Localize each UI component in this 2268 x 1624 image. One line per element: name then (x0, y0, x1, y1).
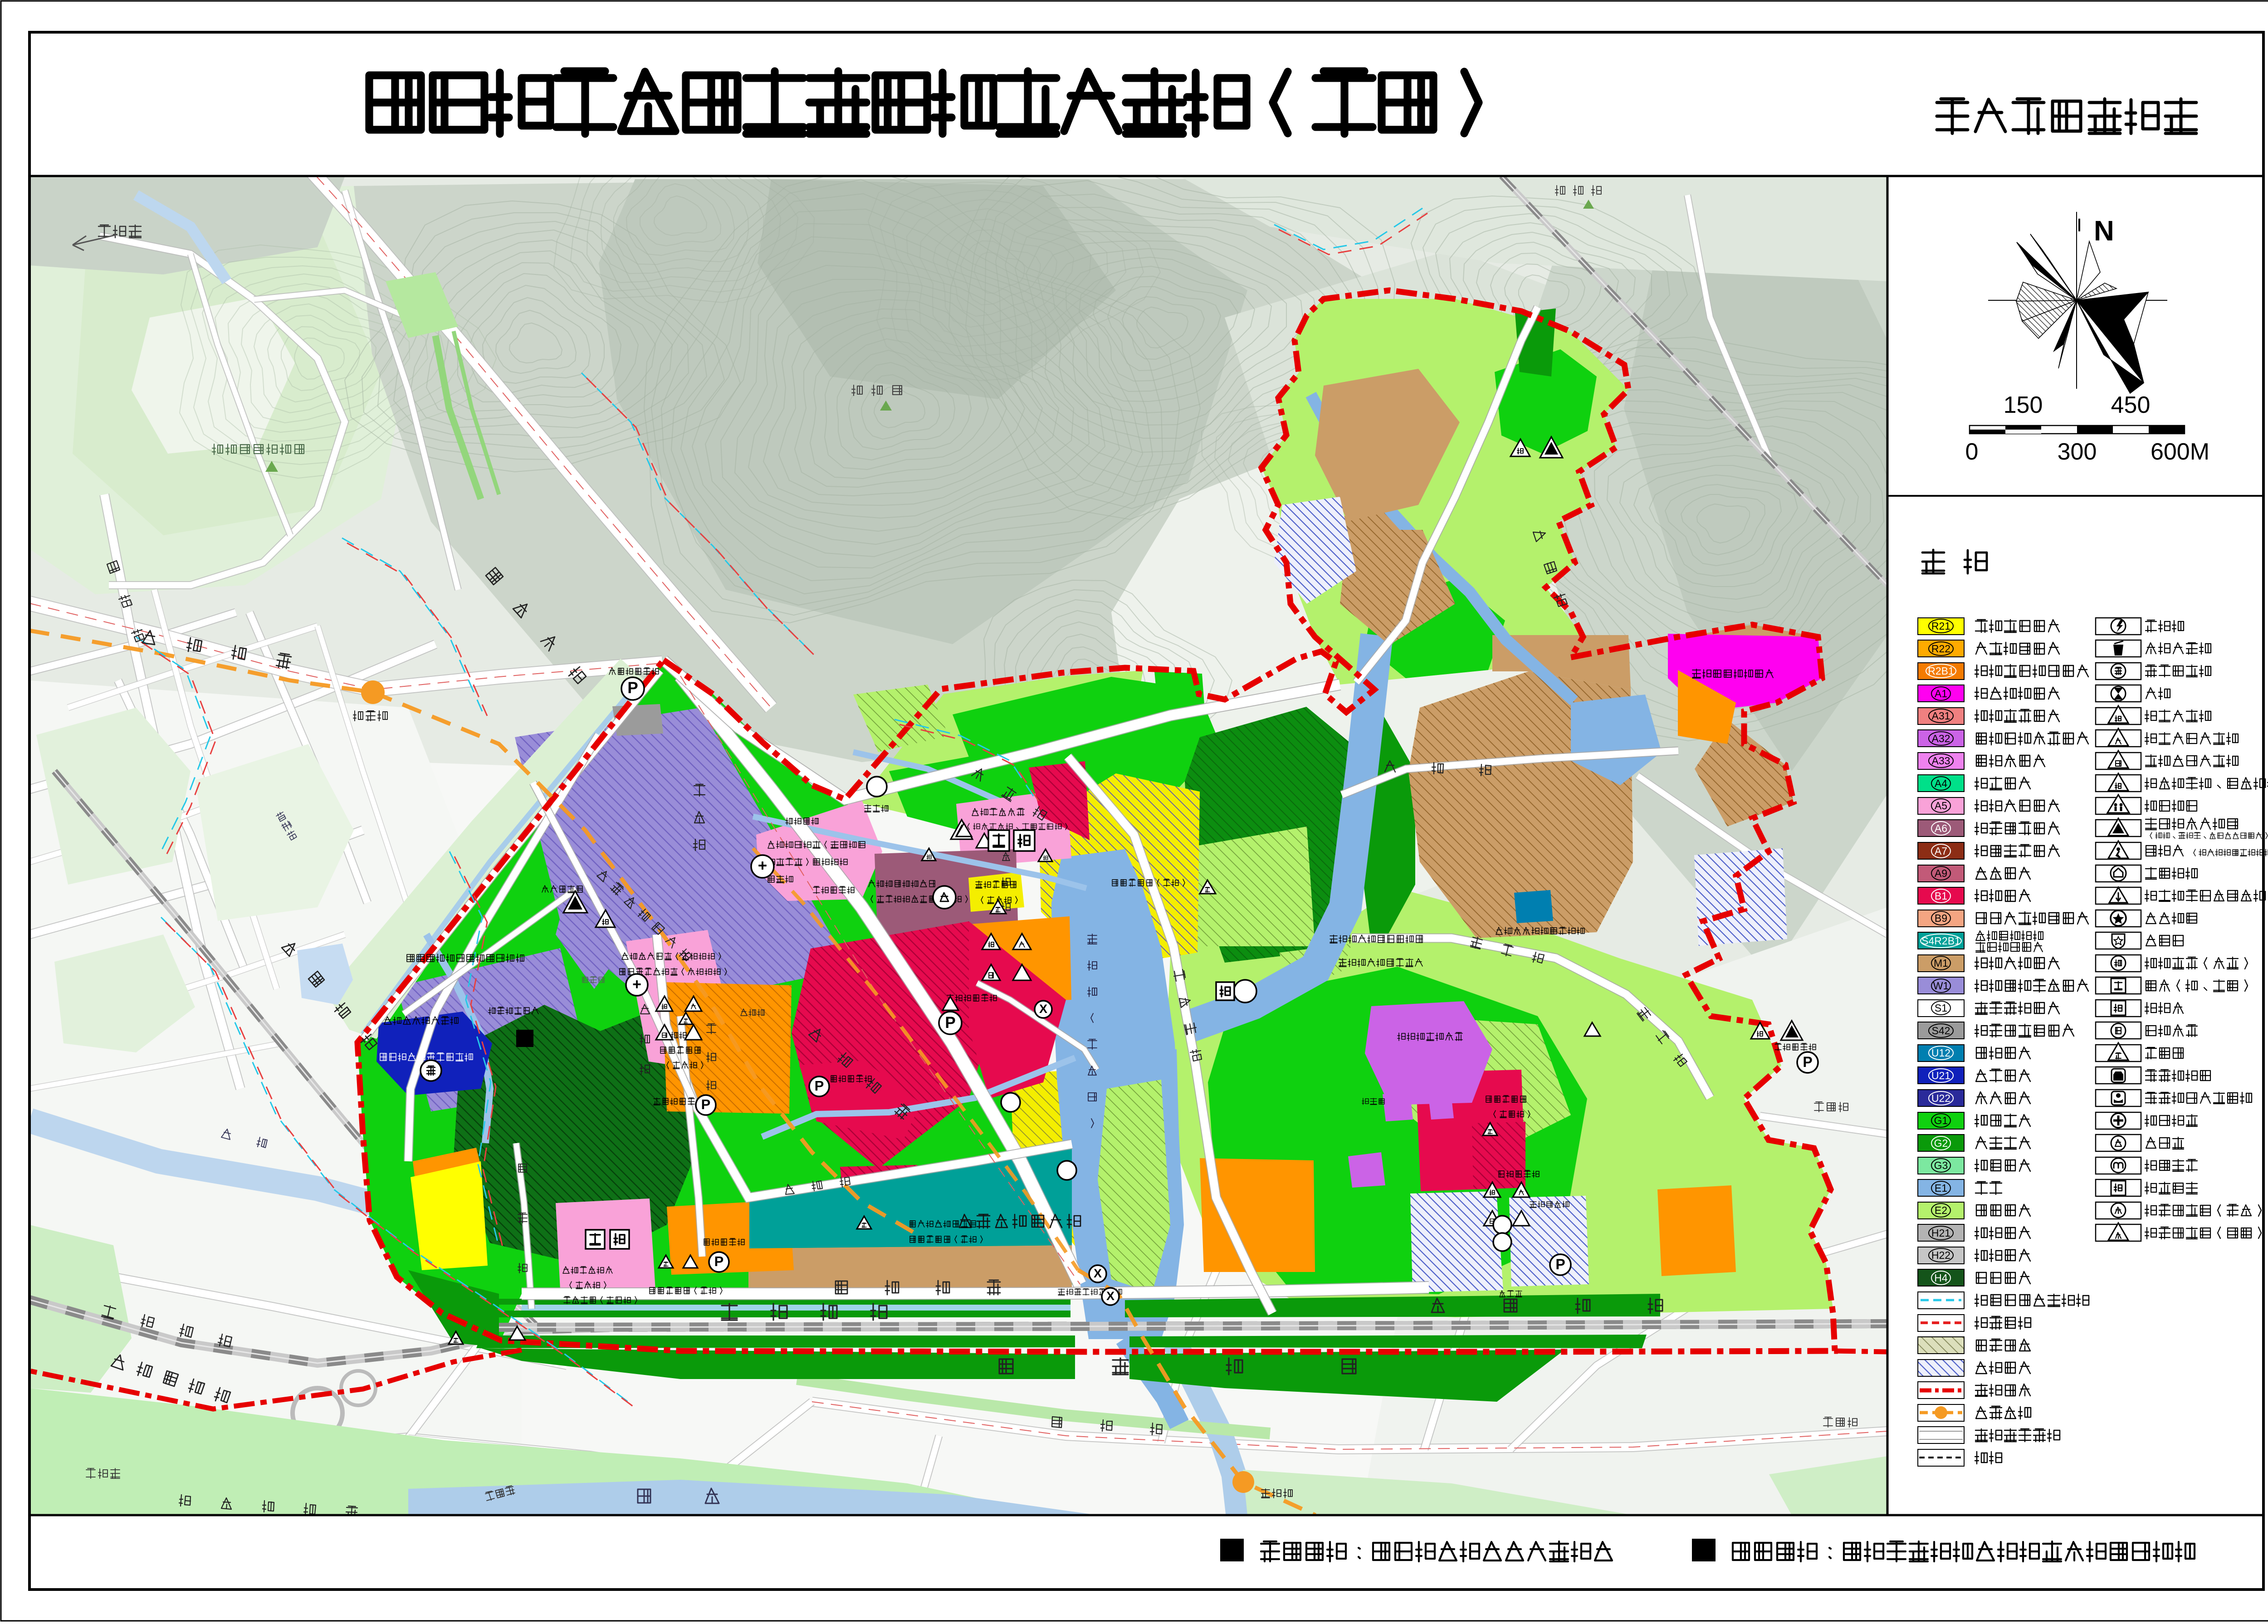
svg-text:S4R2B1: S4R2B1 (1921, 935, 1960, 947)
svg-text:150: 150 (2004, 392, 2043, 418)
svg-text:450: 450 (2111, 392, 2151, 418)
svg-text:G3: G3 (1934, 1159, 1948, 1171)
svg-text:W1: W1 (1933, 980, 1949, 992)
svg-text:P: P (1555, 1256, 1565, 1272)
svg-text:X: X (1094, 1267, 1102, 1280)
svg-text:P: P (714, 1253, 724, 1269)
svg-text:B9: B9 (1935, 912, 1947, 924)
svg-text:A9: A9 (1935, 867, 1947, 879)
svg-text:A32: A32 (1932, 733, 1950, 744)
svg-text:+: + (758, 857, 767, 875)
svg-text:A5: A5 (1935, 800, 1947, 812)
svg-text:A31: A31 (1932, 710, 1950, 722)
svg-text:P: P (701, 1096, 711, 1112)
svg-text:300: 300 (2058, 439, 2097, 465)
svg-text:X: X (1106, 1289, 1114, 1303)
svg-text:A6: A6 (1935, 822, 1947, 834)
svg-text:G1: G1 (1934, 1115, 1948, 1126)
svg-text:U22: U22 (1931, 1092, 1950, 1104)
svg-text:+: + (632, 976, 641, 993)
svg-text:P: P (1803, 1054, 1812, 1070)
svg-text:B1: B1 (1935, 890, 1947, 902)
svg-text:U12: U12 (1931, 1047, 1950, 1059)
svg-text:G2: G2 (1934, 1137, 1948, 1149)
svg-text:R22: R22 (1931, 643, 1950, 655)
svg-text:H21: H21 (1931, 1227, 1950, 1239)
svg-text:P: P (945, 1014, 955, 1032)
svg-text:P: P (815, 1078, 824, 1094)
svg-text:600M: 600M (2151, 439, 2209, 465)
svg-text:A33: A33 (1932, 755, 1950, 767)
svg-text:X: X (1039, 1002, 1047, 1016)
svg-text:S42: S42 (1932, 1025, 1950, 1037)
svg-text:R21: R21 (1931, 620, 1950, 632)
svg-text:E1: E1 (1935, 1182, 1947, 1194)
svg-text:H4: H4 (1934, 1272, 1948, 1284)
svg-text:N: N (2094, 215, 2114, 247)
svg-text:E2: E2 (1935, 1204, 1947, 1216)
svg-text:A7: A7 (1935, 845, 1947, 857)
svg-text:P: P (627, 679, 638, 697)
svg-text:A4: A4 (1935, 778, 1947, 789)
svg-text:R2B1: R2B1 (1928, 665, 1954, 677)
svg-text:S1: S1 (1935, 1002, 1947, 1014)
svg-text:A1: A1 (1935, 688, 1947, 699)
svg-text:0: 0 (1965, 439, 1979, 465)
svg-text:M1: M1 (1934, 957, 1948, 969)
svg-text:H22: H22 (1931, 1249, 1950, 1261)
svg-text:U21: U21 (1931, 1070, 1950, 1081)
